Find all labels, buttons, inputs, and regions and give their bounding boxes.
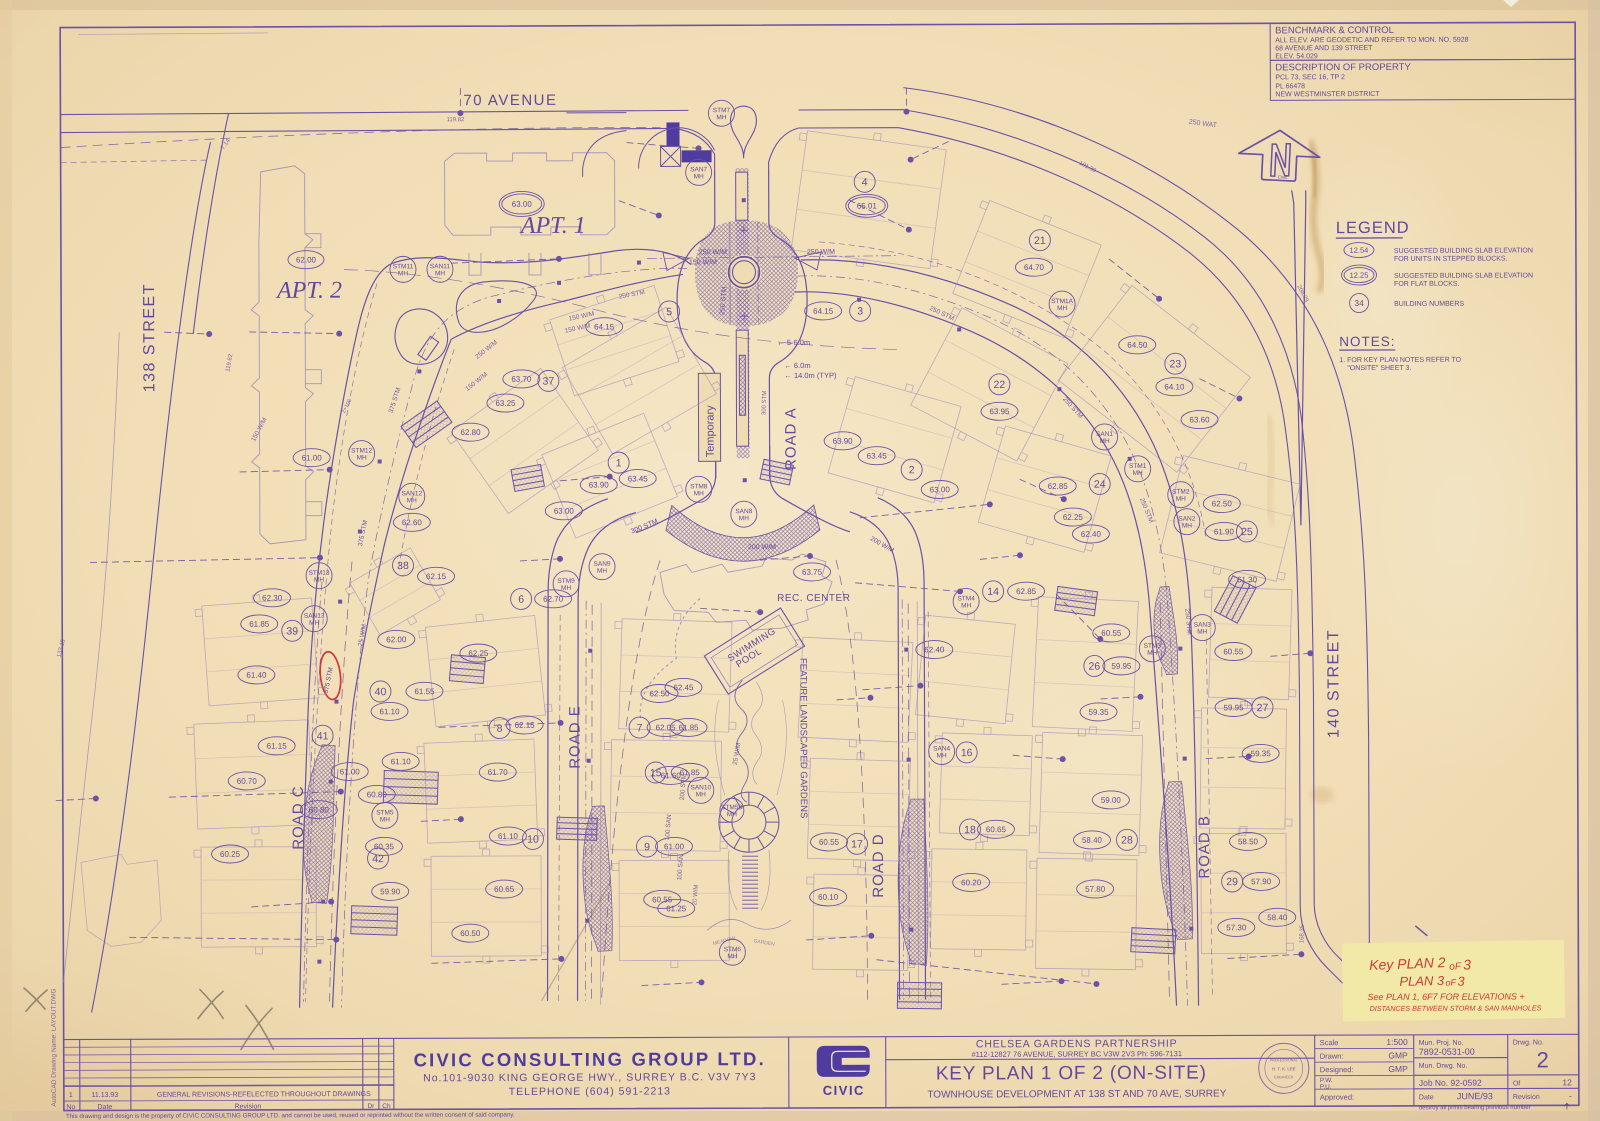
svg-text:STM8: STM8 <box>690 483 708 490</box>
svg-text:← 14.0m (TYP): ← 14.0m (TYP) <box>784 371 837 380</box>
svg-text:SAN11: SAN11 <box>430 263 451 270</box>
svg-text:STM6: STM6 <box>724 946 742 953</box>
svg-text:61.55: 61.55 <box>414 687 435 696</box>
svg-text:22: 22 <box>994 379 1006 391</box>
svg-text:← 6.0m: ← 6.0m <box>784 361 810 370</box>
svg-text:62.50: 62.50 <box>1212 499 1233 508</box>
svg-text:ROAD D: ROAD D <box>870 833 887 897</box>
svg-text:61.00: 61.00 <box>340 767 361 776</box>
svg-text:MH: MH <box>1197 629 1207 636</box>
svg-text:Mun. Drwg. No.: Mun. Drwg. No. <box>1419 1063 1468 1070</box>
svg-text:BENCHMARK & CONTROL: BENCHMARK & CONTROL <box>1275 25 1394 36</box>
svg-text:KEY PLAN 1 OF 2 (ON-SITE): KEY PLAN 1 OF 2 (ON-SITE) <box>936 1063 1207 1085</box>
svg-text:2: 2 <box>1537 1047 1549 1072</box>
svg-text:34: 34 <box>1354 298 1364 308</box>
svg-text:ENGINEER: ENGINEER <box>1274 1075 1293 1079</box>
svg-text:APT. 1: APT. 1 <box>519 213 586 239</box>
svg-text:60.55: 60.55 <box>819 838 840 847</box>
svg-text:61.85: 61.85 <box>679 723 700 732</box>
svg-text:MH: MH <box>1100 438 1110 445</box>
svg-text:oF: oF <box>1449 961 1462 972</box>
svg-text:DISTANCES BETWEEN STORM & SAN: DISTANCES BETWEEN STORM & SAN MANHOLES <box>1370 1003 1542 1013</box>
svg-text:STM9: STM9 <box>557 578 575 585</box>
svg-text:Ch: Ch <box>382 1103 391 1110</box>
svg-text:BUILDING NUMBERS: BUILDING NUMBERS <box>1394 301 1464 308</box>
svg-text:MH: MH <box>309 620 319 627</box>
svg-text:FOR UNITS IN STEPPED BLOCKS.: FOR UNITS IN STEPPED BLOCKS. <box>1394 256 1508 263</box>
svg-text:63.70: 63.70 <box>511 375 532 384</box>
svg-text:58.40: 58.40 <box>1267 913 1288 922</box>
svg-text:62.85: 62.85 <box>1016 587 1037 596</box>
svg-text:MH: MH <box>1182 523 1192 530</box>
svg-text:63.45: 63.45 <box>628 474 649 483</box>
svg-text:26: 26 <box>1089 661 1101 673</box>
svg-text:57.90: 57.90 <box>1251 877 1272 886</box>
svg-text:GMP: GMP <box>1388 1064 1408 1074</box>
svg-text:Approved:: Approved: <box>1320 1093 1354 1102</box>
svg-text:3: 3 <box>1457 974 1465 989</box>
svg-text:59.90: 59.90 <box>380 887 401 896</box>
svg-text:59.95: 59.95 <box>1111 662 1132 671</box>
svg-text:60.50: 60.50 <box>460 929 481 938</box>
svg-text:59.35: 59.35 <box>1089 708 1110 717</box>
svg-text:SAN13: SAN13 <box>304 613 325 620</box>
svg-text:FEATURE LANDSCAPED GARDENS: FEATURE LANDSCAPED GARDENS <box>797 658 809 818</box>
svg-text:MH: MH <box>961 602 971 609</box>
svg-text:-: - <box>1569 1091 1572 1101</box>
svg-text:APT. 2: APT. 2 <box>275 278 342 304</box>
svg-text:60.20: 60.20 <box>961 878 982 887</box>
svg-text:3: 3 <box>1463 956 1472 972</box>
svg-text:NOTES:: NOTES: <box>1339 334 1395 349</box>
svg-text:61.15: 61.15 <box>267 742 288 751</box>
svg-text:59.35: 59.35 <box>1251 749 1272 758</box>
svg-text:62.15: 62.15 <box>515 721 536 730</box>
svg-text:62.05: 62.05 <box>656 723 677 732</box>
svg-text:39: 39 <box>286 625 298 637</box>
svg-text:SAN3: SAN3 <box>1194 622 1211 629</box>
svg-text:60.65: 60.65 <box>494 885 515 894</box>
svg-text:STM7: STM7 <box>713 107 731 114</box>
svg-text:63.95: 63.95 <box>989 407 1010 416</box>
svg-text:ROAD E: ROAD E <box>567 705 584 769</box>
svg-text:62.50: 62.50 <box>649 689 670 698</box>
svg-text:MH: MH <box>314 577 324 584</box>
svg-text:MH: MH <box>937 752 947 759</box>
svg-text:62.60: 62.60 <box>402 518 423 527</box>
svg-text:57.80: 57.80 <box>1085 885 1106 894</box>
svg-text:AutoCAD Drawing Name: LAYOUT.D: AutoCAD Drawing Name: LAYOUT.DWG <box>50 989 57 1107</box>
svg-text:61.00: 61.00 <box>302 453 323 462</box>
svg-text:59.95: 59.95 <box>1223 703 1244 712</box>
svg-text:Civic: Civic <box>1278 174 1289 180</box>
svg-text:61.40: 61.40 <box>246 671 267 680</box>
svg-text:250 W/M: 250 W/M <box>699 249 727 256</box>
svg-text:62.80: 62.80 <box>461 428 482 437</box>
svg-text:8: 8 <box>497 723 503 735</box>
svg-text:37: 37 <box>543 376 555 388</box>
svg-text:MH: MH <box>716 114 726 121</box>
svg-text:"ONSITE" SHEET 3.: "ONSITE" SHEET 3. <box>1347 365 1411 372</box>
svg-text:MH: MH <box>739 515 749 522</box>
svg-text:140 STREET: 140 STREET <box>1325 629 1342 738</box>
svg-text:63.00: 63.00 <box>512 200 533 209</box>
svg-text:63.45: 63.45 <box>867 451 888 460</box>
svg-text:STM3: STM3 <box>1144 643 1162 650</box>
svg-text:63.75: 63.75 <box>802 568 823 577</box>
svg-text:28: 28 <box>1121 835 1133 847</box>
svg-text:62.00: 62.00 <box>296 255 317 264</box>
svg-text:62.85: 62.85 <box>1048 482 1069 491</box>
svg-text:SAN2: SAN2 <box>1178 516 1195 523</box>
svg-text:ELEV. 54.029: ELEV. 54.029 <box>1275 53 1318 60</box>
svg-text:12.25: 12.25 <box>1350 271 1369 280</box>
svg-text:SAN9: SAN9 <box>594 561 611 568</box>
svg-text:62.40: 62.40 <box>1081 530 1102 539</box>
svg-text:64.50: 64.50 <box>1127 341 1148 350</box>
svg-text:NEW WESTMINSTER DISTRICT: NEW WESTMINSTER DISTRICT <box>1275 91 1380 98</box>
svg-text:1: 1 <box>616 457 622 469</box>
svg-text:1: 1 <box>69 1092 73 1099</box>
svg-text:1. FOR KEY PLAN NOTES REFER T: 1. FOR KEY PLAN NOTES REFER TO <box>1339 357 1461 364</box>
svg-text:68 AVENUE AND 139 STREET: 68 AVENUE AND 139 STREET <box>1275 45 1373 52</box>
svg-text:63.90: 63.90 <box>833 437 854 446</box>
svg-text:64.15: 64.15 <box>594 322 615 331</box>
svg-text:Drawn:: Drawn: <box>1320 1052 1344 1061</box>
svg-text:16: 16 <box>961 747 973 759</box>
svg-text:61.10: 61.10 <box>391 757 412 766</box>
svg-text:62.45: 62.45 <box>673 683 694 692</box>
svg-text:4: 4 <box>862 176 868 188</box>
svg-text:70 AVENUE: 70 AVENUE <box>463 92 557 109</box>
svg-text:61.00: 61.00 <box>664 842 685 851</box>
svg-text:Job No. 92-0592: Job No. 92-0592 <box>1419 1078 1482 1088</box>
svg-text:Revision: Revision <box>234 1103 261 1110</box>
svg-text:61.85: 61.85 <box>249 620 270 629</box>
svg-text:200 W/M: 200 W/M <box>748 544 776 551</box>
svg-text:63.25: 63.25 <box>495 399 516 408</box>
svg-text:27: 27 <box>1257 702 1269 714</box>
svg-text:MH: MH <box>357 455 367 462</box>
svg-text:MH: MH <box>1147 650 1157 657</box>
svg-text:STM4: STM4 <box>957 595 975 602</box>
svg-text:Date: Date <box>97 1104 112 1111</box>
svg-text:TELEPHONE (604) 591-2213: TELEPHONE (604) 591-2213 <box>509 1085 671 1098</box>
svg-text:14: 14 <box>987 586 999 598</box>
svg-text:119.82: 119.82 <box>446 117 465 123</box>
svg-text:CIVIC CONSULTING GROUP LTD.: CIVIC CONSULTING GROUP LTD. <box>414 1048 766 1070</box>
svg-text:60.55: 60.55 <box>1223 647 1244 656</box>
svg-text:LEGEND: LEGEND <box>1336 219 1410 237</box>
svg-text:SAN4: SAN4 <box>933 745 950 752</box>
svg-text:1:500: 1:500 <box>1386 1037 1408 1047</box>
svg-text:5: 5 <box>666 306 672 318</box>
svg-text:60.10: 60.10 <box>818 893 839 902</box>
svg-text:150 W/M: 150 W/M <box>689 259 717 266</box>
svg-text:62.40: 62.40 <box>924 645 945 654</box>
svg-text:MH: MH <box>407 497 417 504</box>
svg-text:Temporary: Temporary <box>704 405 716 458</box>
svg-text:11.13.93: 11.13.93 <box>91 1092 118 1099</box>
svg-text:Key PLAN 2: Key PLAN 2 <box>1369 954 1446 973</box>
svg-text:63.00: 63.00 <box>554 507 575 516</box>
svg-text:61.10: 61.10 <box>498 832 519 841</box>
svg-text:MH: MH <box>1176 496 1186 503</box>
svg-text:63.00: 63.00 <box>930 485 951 494</box>
svg-text:57.30: 57.30 <box>1226 923 1247 932</box>
svg-text:Designed:: Designed: <box>1320 1065 1354 1074</box>
svg-text:See PLAN 1, 6F7 FOR ELEVATION: See PLAN 1, 6F7 FOR ELEVATIONS + <box>1368 991 1525 1002</box>
svg-text:MH: MH <box>561 585 571 592</box>
svg-text:STM5B: STM5B <box>721 804 743 811</box>
svg-text:24: 24 <box>1094 479 1106 491</box>
svg-text:H. T. K. LEE: H. T. K. LEE <box>1272 1066 1296 1071</box>
svg-text:SAN1: SAN1 <box>1096 431 1113 438</box>
svg-text:60.55: 60.55 <box>1101 629 1122 638</box>
svg-text:168.35: 168.35 <box>1299 924 1306 943</box>
svg-text:63.60: 63.60 <box>1189 415 1210 424</box>
svg-text:Scale: Scale <box>1320 1038 1339 1047</box>
svg-text:STM1A: STM1A <box>1051 298 1073 305</box>
svg-text:No: No <box>66 1104 75 1111</box>
svg-text:GENERAL REVISIONS-REFELECTED T: GENERAL REVISIONS-REFELECTED THROUGHOUT … <box>157 1091 371 1099</box>
svg-text:18: 18 <box>964 824 976 836</box>
svg-text:MH: MH <box>435 270 445 277</box>
svg-text:64.70: 64.70 <box>1024 263 1045 272</box>
svg-text:GMP: GMP <box>1388 1050 1408 1060</box>
svg-text:MH: MH <box>1133 470 1143 477</box>
svg-text:MH: MH <box>727 953 737 960</box>
svg-text:61.70: 61.70 <box>488 768 509 777</box>
svg-text:MH: MH <box>380 816 390 823</box>
svg-text:CIVIC: CIVIC <box>823 1083 865 1098</box>
svg-text:63.90: 63.90 <box>589 480 610 489</box>
svg-text:STM11: STM11 <box>393 263 414 270</box>
svg-text:12: 12 <box>1562 1077 1572 1087</box>
svg-text:ROAD A: ROAD A <box>782 407 799 470</box>
svg-text:PLAN 3: PLAN 3 <box>1399 973 1445 989</box>
svg-text:60.35: 60.35 <box>374 842 395 851</box>
svg-text:Drwg. No.: Drwg. No. <box>1513 1039 1544 1046</box>
svg-text:62.00: 62.00 <box>386 635 407 644</box>
svg-text:SUGGESTED BUILDING SLAB ELEVAT: SUGGESTED BUILDING SLAB ELEVATION <box>1394 272 1533 279</box>
svg-text:P.U.: P.U. <box>1320 1084 1332 1091</box>
svg-text:300 STM: 300 STM <box>761 391 768 416</box>
svg-text:MH: MH <box>597 568 607 575</box>
svg-text:25: 25 <box>1241 526 1253 538</box>
svg-text:#112-12827 76 AVENUE, SURREY B: #112-12827 76 AVENUE, SURREY BC V3W 2V3 … <box>971 1049 1182 1059</box>
svg-text:62.30: 62.30 <box>262 594 283 603</box>
svg-text:No.101-9030 KING GEORGE HWY.,: No.101-9030 KING GEORGE HWY., SURREY B.C… <box>423 1071 756 1084</box>
svg-text:61.85: 61.85 <box>680 768 701 777</box>
svg-text:SAN12: SAN12 <box>401 490 422 497</box>
svg-text:Of: Of <box>1513 1080 1520 1087</box>
svg-text:60.65: 60.65 <box>986 825 1007 834</box>
svg-text:64.15: 64.15 <box>813 307 834 316</box>
svg-text:64.10: 64.10 <box>1164 382 1185 391</box>
svg-text:9: 9 <box>644 841 650 853</box>
svg-text:Date: Date <box>1419 1094 1434 1101</box>
svg-text:SUGGESTED BUILDING SLAB ELEVAT: SUGGESTED BUILDING SLAB ELEVATION <box>1394 247 1533 254</box>
svg-text:MH: MH <box>1057 305 1067 312</box>
svg-text:17: 17 <box>851 838 863 850</box>
svg-text:STM2: STM2 <box>1172 489 1190 496</box>
svg-text:ROAD C: ROAD C <box>290 785 307 849</box>
svg-text:Revision: Revision <box>1513 1094 1540 1101</box>
svg-text:REC. CENTER: REC. CENTER <box>777 593 850 604</box>
svg-text:JUNE/93: JUNE/93 <box>1457 1091 1493 1101</box>
svg-text:FOR FLAT BLOCKS.: FOR FLAT BLOCKS. <box>1394 281 1460 288</box>
svg-text:12.54: 12.54 <box>1350 246 1369 255</box>
svg-text:SAN10: SAN10 <box>690 784 711 791</box>
svg-text:SAN7: SAN7 <box>690 166 707 173</box>
svg-text:PCL 73, SEC 16, TP 2: PCL 73, SEC 16, TP 2 <box>1275 74 1345 81</box>
svg-text:23: 23 <box>1169 358 1181 370</box>
svg-text:59.00: 59.00 <box>1101 796 1122 805</box>
svg-text:DESCRIPTION OF PROPERTY: DESCRIPTION OF PROPERTY <box>1275 62 1411 73</box>
svg-text:29: 29 <box>1226 876 1238 888</box>
svg-text:MH: MH <box>727 811 737 818</box>
svg-text:STM12: STM12 <box>351 447 372 454</box>
svg-text:ALL ELEV. ARE GEODETIC AND REF: ALL ELEV. ARE GEODETIC AND REFER TO MON.… <box>1275 37 1468 45</box>
svg-text:MH: MH <box>696 791 706 798</box>
svg-text:62.15: 62.15 <box>426 572 447 581</box>
svg-text:7: 7 <box>637 722 643 734</box>
svg-text:58.50: 58.50 <box>1238 837 1259 846</box>
svg-text:60.25: 60.25 <box>220 850 241 859</box>
svg-text:STM5: STM5 <box>376 809 394 816</box>
svg-text:21: 21 <box>1034 235 1046 247</box>
svg-text:TOWNHOUSE DEVELOPMENT AT 138 S: TOWNHOUSE DEVELOPMENT AT 138 ST AND 70 A… <box>927 1089 1226 1101</box>
svg-text:Dr: Dr <box>367 1103 375 1110</box>
svg-text:65.01: 65.01 <box>857 202 878 211</box>
svg-text:MH: MH <box>694 173 704 180</box>
svg-text:10: 10 <box>527 834 539 846</box>
svg-text:destroy all prints bearing pre: destroy all prints bearing previous numb… <box>1419 1105 1531 1111</box>
svg-text:oF: oF <box>1445 978 1456 988</box>
svg-text:MH: MH <box>694 490 704 497</box>
svg-text:61.90: 61.90 <box>1214 527 1235 536</box>
svg-text:60.70: 60.70 <box>237 777 258 786</box>
svg-text:58.40: 58.40 <box>1082 836 1103 845</box>
svg-text:62.25: 62.25 <box>1063 513 1084 522</box>
svg-text:3: 3 <box>857 305 863 317</box>
svg-text:61.10: 61.10 <box>379 707 400 716</box>
svg-text:PL 66478: PL 66478 <box>1275 83 1305 90</box>
svg-text:40: 40 <box>375 686 387 698</box>
svg-text:PROFESSIONAL: PROFESSIONAL <box>1270 1058 1298 1062</box>
svg-text:7892-0531-00: 7892-0531-00 <box>1419 1047 1475 1057</box>
svg-text:138 STREET: 138 STREET <box>141 283 158 392</box>
svg-text:41: 41 <box>317 730 329 742</box>
svg-text:2: 2 <box>909 464 915 476</box>
svg-text:SAN8: SAN8 <box>735 508 752 515</box>
svg-text:61.25: 61.25 <box>666 904 687 913</box>
svg-text:STM1: STM1 <box>1129 463 1147 470</box>
svg-text:6: 6 <box>518 594 524 606</box>
